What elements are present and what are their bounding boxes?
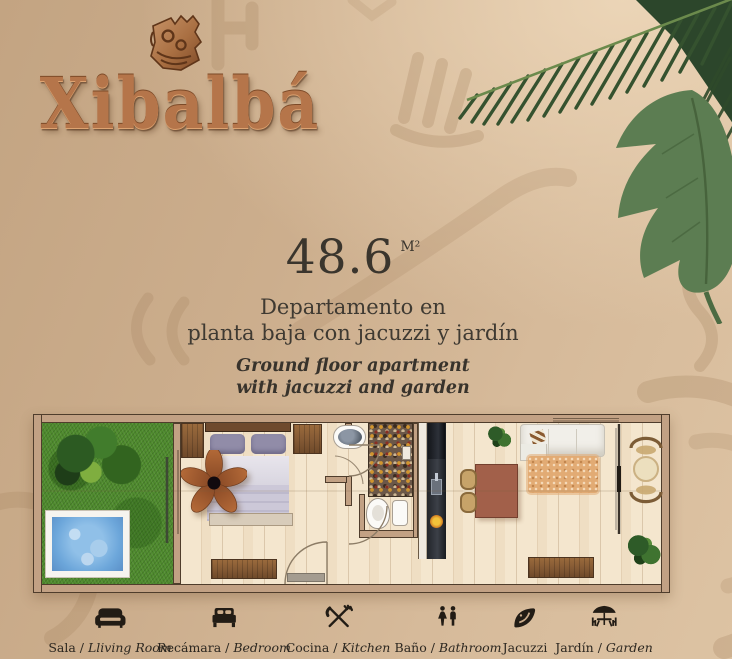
legend-label: Baño / Bathroom	[395, 640, 502, 655]
area-value: 48.6	[286, 230, 395, 285]
legend-label: Jacuzzi	[503, 640, 548, 655]
sofa-icon	[92, 604, 128, 630]
legend-item-sala: Sala / Lliving Room	[48, 604, 171, 655]
bed-icon	[207, 604, 241, 630]
title-spanish: Departamento en planta baja con jacuzzi …	[120, 295, 586, 346]
title-english: Ground floor apartment with jacuzzi and …	[120, 356, 586, 400]
umbrella-table-icon	[587, 604, 621, 630]
legend-item-jardin: Jardín / Garden	[555, 604, 653, 655]
area-unit: M²	[400, 239, 420, 255]
restroom-icon	[432, 604, 464, 630]
legend-label: Jardín / Garden	[555, 640, 653, 655]
cutlery-icon	[322, 604, 354, 630]
plan-line-overlay	[33, 414, 670, 593]
brand-logo: Xibalbá	[30, 62, 330, 145]
poster: Xibalbá 48.6M² Departamento en planta ba…	[0, 0, 732, 659]
legend-item-jacuzzi: Jacuzzi	[503, 604, 548, 655]
legend-item-bano: Baño / Bathroom	[395, 604, 502, 655]
legend-item-recamara: Recámara / Bedroom	[157, 604, 291, 655]
legend-label: Recámara / Bedroom	[157, 640, 291, 655]
legend-label: Cocina / Kitchen	[286, 640, 391, 655]
jacuzzi-icon	[510, 604, 540, 630]
floor-plan	[33, 414, 670, 593]
headline: 48.6M² Departamento en planta baja con j…	[120, 234, 586, 400]
legend-label: Sala / Lliving Room	[48, 640, 171, 655]
area-text: 48.6M²	[120, 234, 586, 281]
legend-item-cocina: Cocina / Kitchen	[286, 604, 391, 655]
